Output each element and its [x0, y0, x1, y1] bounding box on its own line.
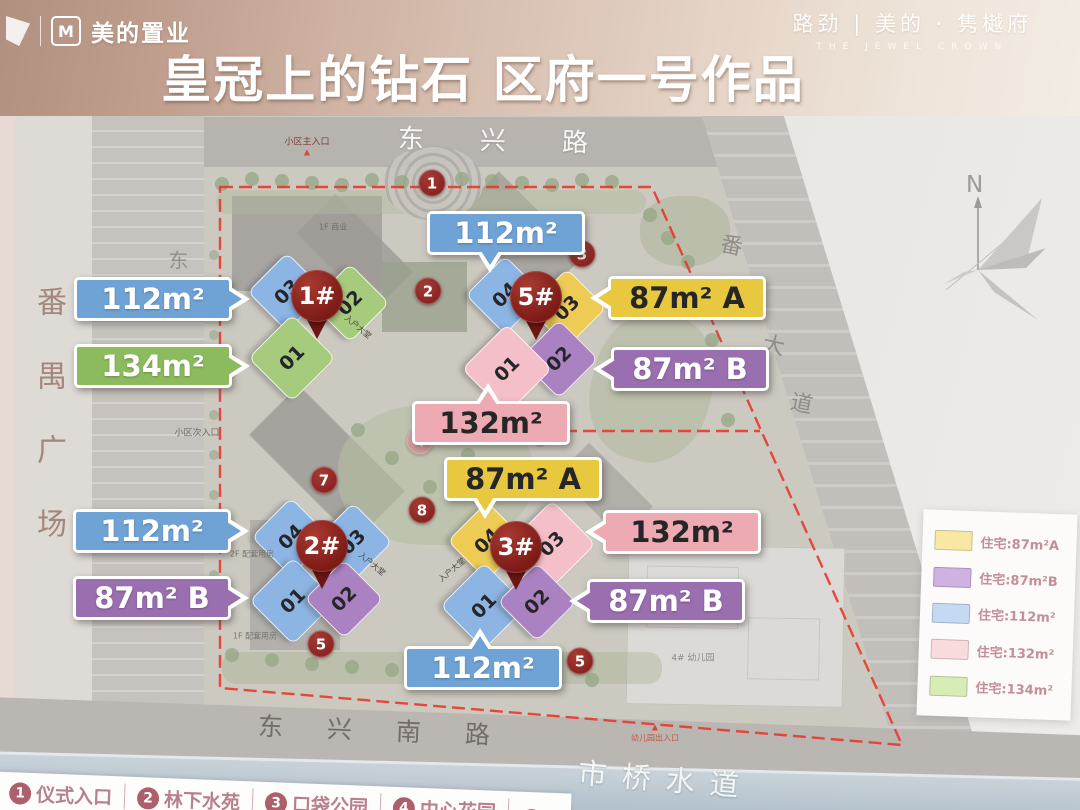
- tree-icon: [365, 173, 379, 187]
- tree-icon: [225, 648, 239, 662]
- legend-label: 住宅:134m²: [975, 677, 1053, 699]
- tree-icon: [345, 660, 359, 674]
- legend-label: 住宅:132m²: [976, 641, 1054, 663]
- area-callout-132m²: 132m²: [412, 401, 570, 445]
- feature-marker-7: 7: [311, 467, 338, 494]
- feature-marker-2: 2: [415, 278, 442, 305]
- pin-label: 2#: [296, 520, 348, 572]
- callout-pointer-fill: [227, 522, 241, 540]
- legend-label: 住宅:112m²: [978, 605, 1056, 627]
- area-callout-112m²: 112m²: [74, 277, 232, 321]
- legend-swatch: [934, 530, 973, 551]
- callout-pointer-fill: [598, 289, 612, 307]
- tree-icon: [209, 330, 219, 340]
- tree-icon: [335, 178, 349, 192]
- brand-right-subtitle: THE JEWEL CROWN: [793, 42, 1032, 52]
- tree-icon: [209, 410, 219, 420]
- midea-logo-icon: M: [51, 16, 81, 46]
- tree-icon: [643, 208, 657, 222]
- map-text: 小区次入口: [174, 426, 219, 439]
- map-text: ▲: [652, 723, 658, 732]
- feature-marker-8: 8: [409, 497, 436, 524]
- partial-logo-icon: [6, 16, 30, 46]
- tree-icon: [395, 175, 409, 189]
- tree-icon: [209, 490, 219, 500]
- legend-row: 住宅:112m²: [932, 603, 1075, 628]
- callout-pointer-fill: [593, 523, 607, 541]
- callout-pointer-fill: [476, 497, 494, 511]
- tree-icon: [721, 413, 735, 427]
- footer-item-1: 1仪式入口: [9, 779, 113, 810]
- map-text: 4# 幼儿园: [671, 651, 714, 664]
- legend-swatch: [933, 566, 972, 587]
- area-callout-87m²B: 87m² B: [73, 576, 231, 620]
- building-pin-5#: 5#: [510, 271, 562, 323]
- footer-item-3: 3口袋公园: [265, 789, 369, 810]
- tree-icon: [385, 663, 399, 677]
- legend-row: 住宅:87m²B: [933, 566, 1076, 591]
- area-callout-87m²A: 87m² A: [608, 276, 766, 320]
- legend-swatch: [930, 639, 969, 660]
- tree-icon: [275, 174, 289, 188]
- callout-pointer-fill: [228, 357, 242, 375]
- page-title: 皇冠上的钻石 区府一号作品: [161, 40, 804, 112]
- tree-icon: [215, 177, 229, 191]
- area-callout-87m²B: 87m² B: [587, 579, 745, 623]
- site-plan-board: 东兴路 东兴南路 番禺广场 东盈 市桥水道 番大道 N 030201040302…: [0, 0, 1080, 810]
- tree-icon: [245, 172, 259, 186]
- feature-marker-1: 1: [419, 170, 446, 197]
- legend-row: 住宅:134m²: [929, 675, 1072, 700]
- legend-card: 住宅:87m²A住宅:87m²B住宅:112m²住宅:132m²住宅:134m²: [916, 509, 1077, 720]
- footer-item-label: 口袋公园: [291, 790, 368, 810]
- footer-separator: [124, 783, 126, 809]
- area-callout-112m²: 112m²: [73, 509, 231, 553]
- unit-number: 01: [467, 589, 501, 623]
- legend-label: 住宅:87m²A: [980, 532, 1059, 554]
- building-pin-2#: 2#: [296, 520, 348, 572]
- feature-marker-5: 5: [308, 631, 335, 658]
- building-pin-1#: 1#: [291, 270, 343, 322]
- pin-label: 1#: [291, 270, 343, 322]
- legend-label: 住宅:87m²B: [979, 569, 1058, 591]
- footer-number-badge: 3: [265, 791, 288, 810]
- tree-icon: [661, 231, 675, 245]
- header: M 美的置业 路劲 | 美的 · 隽樾府 THE JEWEL CROWN 皇冠上…: [0, 0, 1080, 116]
- area-callout-112m²: 112m²: [427, 211, 585, 255]
- tree-icon: [209, 250, 219, 260]
- tree-icon: [265, 653, 279, 667]
- tree-icon: [705, 333, 719, 347]
- area-label-panyu-square: 番禺广场: [26, 286, 70, 582]
- pin-label: 5#: [510, 271, 562, 323]
- footer-separator: [252, 788, 254, 810]
- tree-icon: [545, 178, 559, 192]
- map-text: ▲: [304, 148, 310, 157]
- callout-pointer-fill: [479, 391, 497, 405]
- callout-pointer-fill: [227, 589, 241, 607]
- footer-item-label: 中心花园: [419, 795, 496, 810]
- tree-icon: [455, 172, 469, 186]
- map-text: 2F 配套用房: [230, 549, 274, 560]
- road-label-dongxing: 东兴路: [398, 118, 645, 160]
- area-callout-132m²: 132m²: [603, 510, 761, 554]
- compass-rose-icon: [938, 192, 1053, 332]
- footer-number-badge: 4: [393, 796, 416, 810]
- area-callout-112m²: 112m²: [404, 646, 562, 690]
- legend-row: 住宅:87m²A: [934, 530, 1077, 555]
- unit-number: 02: [520, 585, 554, 619]
- map-text: 小区主入口: [284, 135, 329, 148]
- tree-icon: [305, 176, 319, 190]
- unit-number: 01: [276, 584, 310, 618]
- divider: [40, 16, 41, 46]
- footer-separator: [507, 798, 509, 810]
- tree-icon: [351, 423, 365, 437]
- tree-icon: [423, 480, 437, 494]
- left-edge-tint: [0, 114, 15, 764]
- tree-icon: [681, 255, 695, 269]
- legend-swatch: [932, 603, 971, 624]
- feature-marker-5: 5: [567, 648, 594, 675]
- unit-number: 01: [490, 352, 524, 386]
- footer-item-2: 2林下水苑: [137, 784, 241, 810]
- footer-item-4: 4中心花园: [392, 794, 496, 810]
- tree-icon: [305, 657, 319, 671]
- tree-icon: [575, 173, 589, 187]
- area-callout-134m²: 134m²: [74, 344, 232, 388]
- footer-number-badge: 1: [9, 782, 32, 805]
- tree-icon: [209, 450, 219, 460]
- footer-separator: [379, 793, 381, 810]
- unit-number: 01: [275, 341, 309, 375]
- brand-right-name: 路劲 | 美的 · 隽樾府: [793, 8, 1032, 38]
- callout-pointer-fill: [228, 290, 242, 308]
- map-text: 幼儿园出入口: [631, 733, 679, 744]
- legend-row: 住宅:132m²: [930, 639, 1073, 664]
- area-callout-87m²A: 87m² A: [444, 457, 602, 501]
- footer-number-badge: 2: [137, 786, 160, 809]
- pin-label: 3#: [490, 521, 542, 573]
- footer-item-label: 仪式入口: [36, 780, 113, 810]
- tree-icon: [515, 176, 529, 190]
- tree-icon: [385, 451, 399, 465]
- callout-pointer-fill: [577, 592, 591, 610]
- road-left: [92, 114, 204, 764]
- area-callout-87m²B: 87m² B: [611, 347, 769, 391]
- map-text: 1F 商业: [319, 222, 347, 233]
- legend-swatch: [929, 675, 968, 696]
- kindergarten-building: [626, 544, 846, 708]
- tree-icon: [485, 174, 499, 188]
- footer-item-label: 林下水苑: [164, 785, 241, 810]
- building-pin-3#: 3#: [490, 521, 542, 573]
- brand-right: 路劲 | 美的 · 隽樾府 THE JEWEL CROWN: [793, 8, 1032, 52]
- callout-pointer-fill: [601, 360, 615, 378]
- tree-icon: [605, 175, 619, 189]
- tree-icon: [585, 673, 599, 687]
- map-text: 1F 配套用房: [233, 631, 277, 642]
- callout-pointer-fill: [471, 636, 489, 650]
- callout-pointer-fill: [481, 251, 499, 265]
